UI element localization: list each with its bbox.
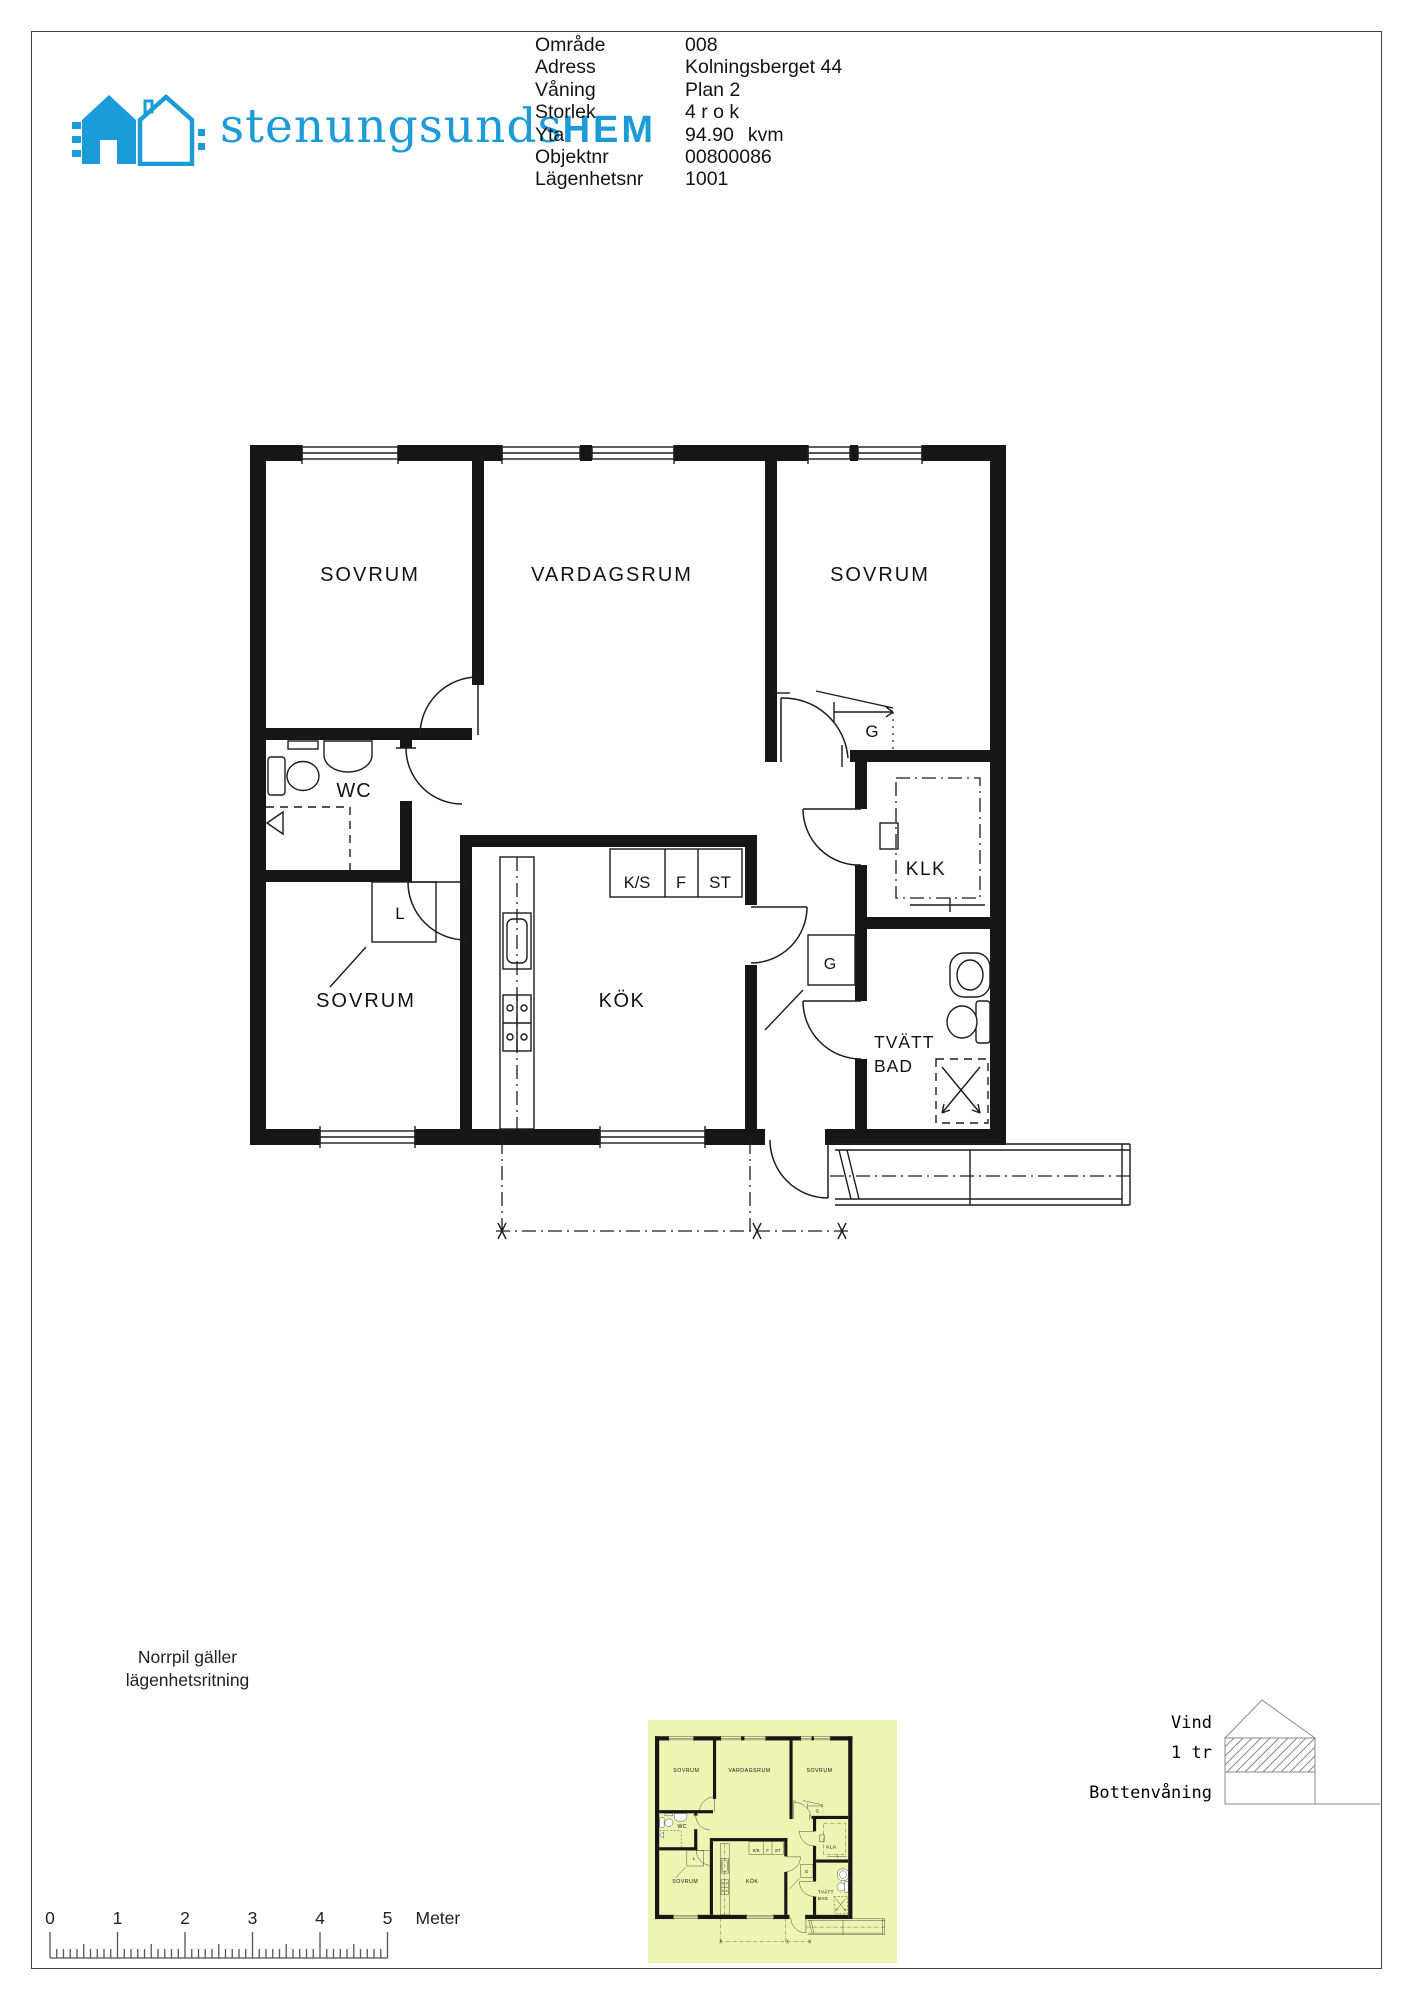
meta-row-omrade: Område008 (535, 34, 842, 56)
room-label: TVÄTT (874, 1032, 934, 1052)
scale-number: 0 (45, 1908, 55, 1928)
kitchen-fixtures (500, 849, 742, 1129)
meta-row-lagenhetsnr: Lägenhetsnr1001 (535, 168, 842, 190)
bathroom-fixtures (936, 953, 990, 1123)
door-icon (803, 809, 861, 865)
room-label: ST (709, 873, 731, 892)
door-icon (408, 882, 466, 940)
scale-number: 4 (315, 1908, 325, 1928)
vent-triangle-icon (267, 812, 283, 834)
logo-text-main: stenungsunds (220, 99, 563, 154)
meta-label: Objektnr (535, 146, 685, 168)
meta-label: Område (535, 34, 685, 56)
section-label-vind: Vind (1171, 1713, 1212, 1733)
meta-value: 008 (685, 34, 718, 56)
room-label: SOVRUM (316, 990, 416, 1012)
window-icons (302, 445, 922, 1148)
meta-row-adress: AdressKolningsberget 44 (535, 56, 842, 78)
window-icon (320, 1126, 415, 1148)
door-icon (774, 693, 848, 767)
building-section: Vind 1 tr Bottenvåning (1040, 1692, 1380, 1817)
linen-closet (330, 882, 436, 987)
room-label: K/S (624, 874, 651, 892)
scale-numbers: 012345Meter (45, 1908, 460, 1928)
floor-plan: SOVRUMVARDAGSRUMSOVRUMWCLK/SFSTSOVRUMKÖK… (250, 445, 1150, 1255)
shower-icon (936, 1059, 988, 1123)
klk-closet-rail (880, 778, 985, 912)
floor-plan-thumbnail (648, 1720, 897, 1963)
north-note-line2: lägenhetsritning (75, 1669, 300, 1692)
apartment-metadata: Område008 AdressKolningsberget 44 Våning… (535, 34, 842, 191)
wardrobe-marks (816, 691, 893, 760)
scale-bar: 012345Meter (40, 1902, 510, 1977)
entry-door-icon (770, 1140, 828, 1198)
meta-value: 00800086 (685, 146, 772, 168)
section-label-bottenvaning: Bottenvåning (1089, 1782, 1212, 1803)
hall-wardrobe (765, 935, 855, 1030)
door-icon (751, 907, 807, 963)
mirror-icon (288, 741, 318, 749)
meta-value: 94.90 (685, 124, 734, 146)
scale-ticks (50, 1932, 388, 1958)
sink-icon (324, 741, 372, 772)
room-label: WC (336, 780, 371, 802)
logo-houses-icon (72, 86, 206, 166)
page: { "header": { "logo": { "text_main": "st… (0, 0, 1413, 2000)
meta-label: Adress (535, 56, 685, 78)
meta-value: 4 r o k (685, 101, 739, 123)
room-label: SOVRUM (830, 564, 930, 586)
door-icon (803, 1001, 861, 1059)
room-label: SOVRUM (320, 564, 420, 586)
scale-number: 2 (180, 1908, 190, 1928)
deck (830, 1144, 1134, 1205)
room-label: F (676, 874, 686, 892)
floor-plan-thumbnail-drawing (655, 1736, 890, 1948)
meta-value: Plan 2 (685, 79, 740, 101)
scale-unit-label: Meter (416, 1908, 461, 1928)
scale-number: 5 (383, 1908, 393, 1928)
meta-label: Storlek (535, 101, 685, 123)
room-label: L (395, 904, 404, 923)
meta-label: Lägenhetsnr (535, 168, 685, 190)
meta-row-vaning: VåningPlan 2 (535, 79, 842, 101)
sink-icon (950, 953, 990, 997)
meta-row-yta: Yta94.90kvm (535, 124, 842, 146)
section-label-1tr: 1 tr (1171, 1743, 1212, 1763)
stove-icon (503, 995, 531, 1051)
interior-walls (266, 461, 990, 1129)
scale-number: 1 (113, 1908, 123, 1928)
room-label: G (824, 956, 836, 973)
room-label: G (865, 722, 878, 741)
meta-suffix: kvm (748, 124, 784, 146)
room-label: BAD (874, 1056, 913, 1076)
wc-fixtures (266, 741, 372, 874)
room-label: KLK (906, 859, 946, 880)
floor-plan-drawing: SOVRUMVARDAGSRUMSOVRUMWCLK/SFSTSOVRUMKÖK… (250, 445, 1134, 1239)
north-note-line1: Norrpil gäller (75, 1646, 300, 1669)
north-note: Norrpil gäller lägenhetsritning (75, 1646, 300, 1692)
meta-row-storlek: Storlek4 r o k (535, 101, 842, 123)
meta-value: 1001 (685, 168, 728, 190)
window-icon (600, 1126, 705, 1148)
meta-row-objektnr: Objektnr00800086 (535, 146, 842, 168)
meta-label: Våning (535, 79, 685, 101)
room-label: VARDAGSRUM (531, 564, 693, 586)
meta-value: Kolningsberget 44 (685, 56, 842, 78)
toilet-icon (268, 757, 319, 795)
window-icon (808, 445, 922, 464)
house-section-icon (1225, 1700, 1380, 1804)
meta-label: Yta (535, 124, 685, 146)
room-label: KÖK (599, 990, 646, 1012)
hatch-lines (1225, 1738, 1315, 1772)
window-icon (302, 445, 398, 464)
door-icon (396, 748, 462, 804)
toilet-icon (947, 1001, 990, 1043)
door-icon (420, 677, 478, 735)
scale-number: 3 (248, 1908, 258, 1928)
